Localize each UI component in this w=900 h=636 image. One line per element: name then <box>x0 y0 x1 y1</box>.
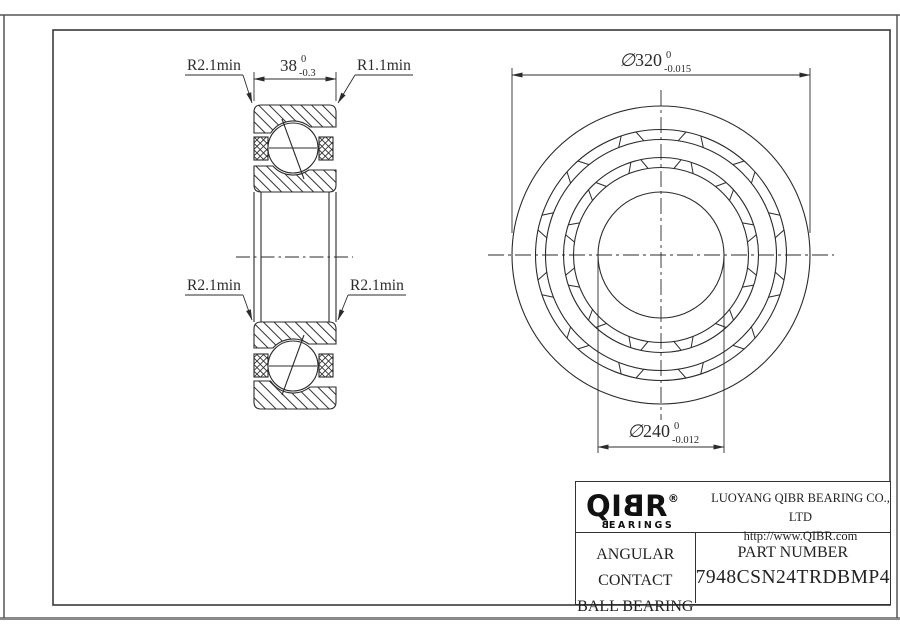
width-dimension-text: 38 0 -0.3 <box>280 54 316 79</box>
registered-trademark-icon: ® <box>668 492 679 505</box>
outer-dia-tol-lower: -0.015 <box>664 64 691 75</box>
radius-label-mid-right: R2.1min <box>338 277 406 320</box>
section-top-half <box>254 105 336 192</box>
svg-text:R1.1min: R1.1min <box>357 57 411 74</box>
bore-dia-value: ∅240 <box>627 421 670 441</box>
cage-section-right <box>319 354 333 377</box>
cage-section-left <box>254 354 268 377</box>
width-dimension <box>254 72 336 101</box>
bore-dia-tol-upper: 0 <box>674 421 679 432</box>
drawing-sheet: 38 0 -0.3 R2.1min R1.1min R2.1min R2.1mi… <box>0 0 900 636</box>
svg-text:R2.1min: R2.1min <box>350 277 404 294</box>
section-bottom-half <box>254 322 336 409</box>
logo-wordmark: QIBR® <box>586 484 711 521</box>
front-view <box>488 90 834 420</box>
bore-dia-tol-lower: -0.012 <box>672 435 699 446</box>
title-block-detail-row: ANGULAR CONTACT BALL BEARING PART NUMBER… <box>576 533 890 603</box>
part-number-label: PART NUMBER <box>696 533 890 565</box>
product-type: ANGULAR CONTACT BALL BEARING <box>576 533 696 603</box>
part-number-value: 7948CSN24TRDBMP4 <box>696 565 890 591</box>
brand-logo: QIBR® BEARINGS <box>576 482 711 532</box>
company-name: LUOYANG QIBR BEARING CO., LTD <box>711 489 890 527</box>
cross-section-view <box>236 105 353 409</box>
product-type-line1: ANGULAR CONTACT <box>576 542 695 594</box>
title-block-header-row: QIBR® BEARINGS LUOYANG QIBR BEARING CO.,… <box>576 482 890 533</box>
outer-dia-tol-upper: 0 <box>666 50 671 61</box>
bore-diameter-text: ∅240 0 -0.012 <box>627 421 699 446</box>
radius-label-mid-left: R2.1min <box>185 277 252 320</box>
width-value: 38 <box>280 56 297 75</box>
radius-label-top-right: R1.1min <box>338 57 413 103</box>
outer-diameter-text: ∅320 0 -0.015 <box>619 50 691 75</box>
cage-section-right <box>319 137 333 160</box>
width-tol-upper: 0 <box>301 54 306 65</box>
company-info: LUOYANG QIBR BEARING CO., LTD http://www… <box>711 482 890 532</box>
title-block: QIBR® BEARINGS LUOYANG QIBR BEARING CO.,… <box>575 481 891 605</box>
part-number-cell: PART NUMBER 7948CSN24TRDBMP4 <box>696 533 890 603</box>
width-tol-lower: -0.3 <box>299 68 316 79</box>
product-type-line2: BALL BEARING <box>576 594 695 620</box>
outer-dia-value: ∅320 <box>619 50 662 70</box>
logo-subtext: BEARINGS <box>586 520 711 531</box>
svg-text:R2.1min: R2.1min <box>187 277 241 294</box>
radius-label-top-left: R2.1min <box>185 57 252 103</box>
svg-text:R2.1min: R2.1min <box>187 57 241 74</box>
cage-section-left <box>254 137 268 160</box>
